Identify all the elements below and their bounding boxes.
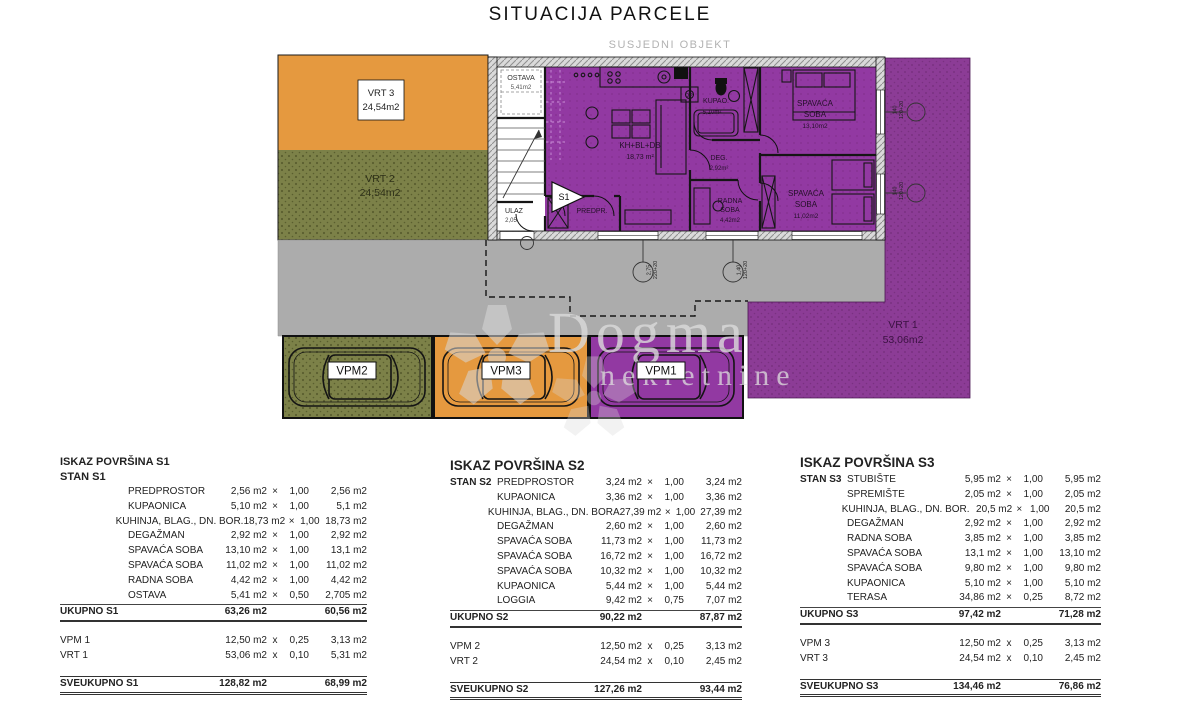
cell-mult [642, 683, 658, 698]
cell-value: 127,26 m2 [594, 683, 642, 698]
table-row: KUHINJA, BLAG., DN. BORA27,39 m2×1,0027,… [450, 506, 742, 521]
cell-group [450, 491, 497, 506]
vrt2-name: VRT 2 [365, 173, 395, 185]
cell-factor [1017, 680, 1043, 695]
spacer [60, 664, 367, 674]
cell-value: 63,26 m2 [219, 605, 267, 620]
cell-group [800, 532, 847, 547]
area-table-s2: ISKAZ POVRŠINA S2STAN S2PREDPROSTOR3,24 … [450, 458, 742, 700]
extra-row: VPM 112,50 m2x0,253,13 m2 [60, 634, 367, 649]
cell-group [800, 562, 847, 577]
unit-marker-label: S1 [558, 192, 569, 202]
cell-mult: × [1001, 532, 1017, 547]
cell-value: 9,42 m2 [594, 594, 642, 609]
cell-label: SPAVAĆA SOBA [128, 544, 219, 559]
table-row: SPAVAĆA SOBA13,1 m2×1,0013,10 m2 [800, 547, 1101, 562]
cell-value: 16,72 m2 [594, 550, 642, 565]
cell-result: 9,80 m2 [1043, 562, 1101, 577]
fridge-icon [674, 67, 688, 79]
cell-factor: 1,00 [1026, 503, 1049, 518]
cell-value: 2,05 m2 [953, 488, 1001, 503]
cell-value: 2,56 m2 [219, 485, 267, 500]
cell-result: 5,95 m2 [1043, 473, 1101, 488]
cell-value: 11,02 m2 [219, 559, 267, 574]
cell-group [800, 488, 847, 503]
table-row: KUPAONICA5,10 m2×1,005,1 m2 [60, 500, 367, 515]
cell-label: KUHINJA, BLAG., DN. BORA [488, 506, 620, 521]
cell-factor: 1,00 [658, 476, 684, 491]
cell-result: 2,56 m2 [309, 485, 367, 500]
spacer [450, 628, 742, 640]
radna-label2: SOBA [720, 207, 740, 214]
cell-mult [267, 605, 283, 620]
cell-result: 87,87 m2 [684, 611, 742, 626]
living-area: 18,73 m² [626, 154, 654, 161]
cell-result: 5,31 m2 [309, 649, 367, 664]
cell-result: 11,02 m2 [309, 559, 367, 574]
cell-group [60, 574, 128, 589]
table-row: SPAVAĆA SOBA11,02 m2×1,0011,02 m2 [60, 559, 367, 574]
cell-label: LOGGIA [497, 594, 594, 609]
cell-mult: × [642, 550, 658, 565]
cell-group [800, 577, 847, 592]
table-row: RADNA SOBA3,85 m2×1,003,85 m2 [800, 532, 1101, 547]
ulaz-dim: 2,05 [505, 218, 517, 224]
spavaca2-label2: SOBA [795, 200, 818, 209]
spacer [60, 622, 367, 634]
cell-mult: × [267, 589, 283, 604]
cell-mult: × [267, 529, 283, 544]
dp-label: DP [685, 93, 693, 99]
cell-group [450, 580, 497, 595]
cell-group [800, 547, 847, 562]
table-row: KUHINJA, BLAG., DN. BOR.18,73 m2×1,0018,… [60, 515, 367, 530]
cell-mult: × [642, 594, 658, 609]
cell-result: 2,92 m2 [309, 529, 367, 544]
cell-mult [642, 611, 658, 626]
cell-mult [1001, 608, 1017, 623]
svg-text:VPM1: VPM1 [645, 366, 676, 378]
cell-factor: 1,00 [283, 485, 309, 500]
cell-value: 3,85 m2 [953, 532, 1001, 547]
cell-mult: x [1001, 652, 1017, 667]
cell-value: 5,10 m2 [953, 577, 1001, 592]
vrt3-name: VRT 3 [368, 88, 395, 99]
svg-text:120+20: 120+20 [899, 182, 905, 200]
svg-text:VPM3: VPM3 [490, 366, 521, 378]
grand-row: SVEUKUPNO S2127,26 m293,44 m2 [450, 682, 742, 701]
cell-mult: × [642, 491, 658, 506]
cell-label: RADNA SOBA [847, 532, 953, 547]
cell-result: 68,99 m2 [309, 677, 367, 692]
cell-label: SPAVAĆA SOBA [497, 565, 594, 580]
cell-result: 18,73 m2 [320, 515, 367, 530]
cell-group [60, 485, 128, 500]
cell-label: UKUPNO S1 [60, 605, 219, 620]
table-row: KUPAONICA3,36 m2×1,003,36 m2 [450, 491, 742, 506]
vpm1-label-box: VPM1 [637, 362, 685, 379]
table-row: LOGGIA9,42 m2×0,757,07 m2 [450, 594, 742, 609]
svg-text:120+20: 120+20 [743, 261, 749, 279]
cell-value: 12,50 m2 [594, 640, 642, 655]
cell-factor: 1,00 [658, 491, 684, 506]
cell-factor [283, 605, 309, 620]
cell-label: SVEUKUPNO S2 [450, 683, 594, 698]
spacer [800, 625, 1101, 637]
cell-label: UKUPNO S2 [450, 611, 594, 626]
cell-result: 93,44 m2 [684, 683, 742, 698]
cell-label: TERASA [847, 591, 953, 606]
cell-result: 20,5 m2 [1049, 503, 1101, 518]
cell-group: STAN S3 [800, 473, 847, 488]
cell-value: 12,50 m2 [953, 637, 1001, 652]
cell-factor [283, 677, 309, 692]
cell-factor: 1,00 [1017, 488, 1043, 503]
cell-label: VRT 3 [800, 652, 953, 667]
cell-mult [267, 677, 283, 692]
cell-value: 5,10 m2 [219, 500, 267, 515]
svg-text:2,75: 2,75 [647, 265, 653, 276]
cell-factor: 1,00 [1017, 473, 1043, 488]
cell-label: SVEUKUPNO S3 [800, 680, 953, 695]
cell-result: 5,44 m2 [684, 580, 742, 595]
cell-mult: × [1001, 517, 1017, 532]
cell-factor: 1,00 [658, 535, 684, 550]
cell-label: SVEUKUPNO S1 [60, 677, 219, 692]
vrt3-label-box: VRT 3 24,54m2 [358, 80, 404, 120]
deg-area: 2,92m² [710, 166, 729, 172]
cell-value: 34,86 m2 [953, 591, 1001, 606]
vrt1-area: 53,06m2 [883, 334, 924, 346]
cell-label: VPM 2 [450, 640, 594, 655]
cell-factor: 0,50 [283, 589, 309, 604]
table-row: PREDPROSTOR2,56 m2×1,002,56 m2 [60, 485, 367, 500]
cell-value: 9,80 m2 [953, 562, 1001, 577]
cell-mult: × [1001, 591, 1017, 606]
vrt1-name: VRT 1 [888, 319, 918, 331]
cell-value: 13,1 m2 [953, 547, 1001, 562]
cell-group [60, 529, 128, 544]
cell-result: 3,85 m2 [1043, 532, 1101, 547]
spavaca2-area: 11,02m2 [794, 213, 819, 220]
cell-label: KUHINJA, BLAG., DN. BOR. [842, 503, 970, 518]
cell-label: SPAVAĆA SOBA [847, 562, 953, 577]
table-row: DEGAŽMAN2,92 m2×1,002,92 m2 [800, 517, 1101, 532]
area-table-s3: ISKAZ POVRŠINA S3STAN S3STUBIŠTE5,95 m2×… [800, 455, 1101, 697]
cell-label: UKUPNO S3 [800, 608, 953, 623]
living-label: KH+BL+DB [619, 141, 660, 150]
cell-result: 3,13 m2 [1043, 637, 1101, 652]
cell-result: 16,72 m2 [684, 550, 742, 565]
ostava-area: 5,41m2 [511, 84, 532, 91]
table-row: KUPAONICA5,44 m2×1,005,44 m2 [450, 580, 742, 595]
cell-group [60, 500, 128, 515]
cell-result: 7,07 m2 [684, 594, 742, 609]
cell-result: 13,1 m2 [309, 544, 367, 559]
table-row: DEGAŽMAN2,60 m2×1,002,60 m2 [450, 520, 742, 535]
cell-mult: x [642, 655, 658, 670]
table-title: ISKAZ POVRŠINA S1 [60, 456, 367, 468]
cell-mult: × [642, 565, 658, 580]
kupaonica-label: KUPAO. [703, 98, 729, 105]
cell-value: 2,92 m2 [219, 529, 267, 544]
cell-label: RADNA SOBA [128, 574, 219, 589]
cell-value: 90,22 m2 [594, 611, 642, 626]
cell-label: DEGAŽMAN [497, 520, 594, 535]
cell-result: 76,86 m2 [1043, 680, 1101, 695]
wall-top [488, 57, 885, 67]
cell-group [800, 591, 847, 606]
cell-label: PREDPROSTOR [497, 476, 594, 491]
cell-value: 24,54 m2 [953, 652, 1001, 667]
cell-result: 60,56 m2 [309, 605, 367, 620]
cell-factor: 0,10 [283, 649, 309, 664]
svg-text:220+20: 220+20 [653, 261, 659, 279]
cell-value: 5,44 m2 [594, 580, 642, 595]
cell-factor: 0,25 [1017, 637, 1043, 652]
cell-mult: × [642, 476, 658, 491]
cell-value: 20,5 m2 [970, 503, 1013, 518]
cell-factor: 1,00 [1017, 547, 1043, 562]
table-row: TERASA34,86 m2×0,258,72 m2 [800, 591, 1101, 606]
table-row: RADNA SOBA4,42 m2×1,004,42 m2 [60, 574, 367, 589]
predprostor-label: PREDPR. [576, 208, 607, 215]
cell-value: 24,54 m2 [594, 655, 642, 670]
cell-factor: 1,00 [283, 574, 309, 589]
total-row: UKUPNO S397,42 m271,28 m2 [800, 607, 1101, 625]
cell-value: 2,92 m2 [953, 517, 1001, 532]
cell-group [450, 535, 497, 550]
svg-text:VPM2: VPM2 [336, 366, 367, 378]
cell-factor: 1,00 [1017, 517, 1043, 532]
table-row: KUHINJA, BLAG., DN. BOR.20,5 m2×1,0020,5… [800, 503, 1101, 518]
cell-factor: 1,00 [658, 565, 684, 580]
cell-factor: 1,00 [283, 529, 309, 544]
cell-factor: 0,25 [658, 640, 684, 655]
table-row: SPAVAĆA SOBA9,80 m2×1,009,80 m2 [800, 562, 1101, 577]
toilet-tank [715, 78, 727, 84]
spavaca1-area: 13,10m2 [802, 123, 828, 130]
cell-label: PREDPROSTOR [128, 485, 219, 500]
cell-factor: 0,25 [1017, 591, 1043, 606]
cell-mult: × [1001, 473, 1017, 488]
cell-label: SPAVAĆA SOBA [128, 559, 219, 574]
cell-mult: × [661, 506, 674, 521]
cell-mult: × [267, 485, 283, 500]
cell-mult: x [642, 640, 658, 655]
spavaca2-label: SPAVAĆA [788, 189, 825, 198]
area-table-s1: ISKAZ POVRŠINA S1STAN S1PREDPROSTOR2,56 … [60, 456, 367, 695]
vrt2-area: 24,54m2 [360, 187, 401, 199]
extra-row: VPM 212,50 m2x0,253,13 m2 [450, 640, 742, 655]
extra-row: VPM 312,50 m2x0,253,13 m2 [800, 637, 1101, 652]
cell-value: 5,95 m2 [953, 473, 1001, 488]
total-row: UKUPNO S163,26 m260,56 m2 [60, 604, 367, 622]
grand-row: SVEUKUPNO S3134,46 m276,86 m2 [800, 679, 1101, 698]
cell-label: DEGAŽMAN [128, 529, 219, 544]
cell-result: 2,45 m2 [1043, 652, 1101, 667]
cell-group [450, 506, 488, 521]
cell-mult: × [1012, 503, 1026, 518]
cell-mult: × [267, 544, 283, 559]
cell-group [60, 559, 128, 574]
cell-result: 2,45 m2 [684, 655, 742, 670]
cell-factor: 0,10 [1017, 652, 1043, 667]
cell-mult: × [267, 500, 283, 515]
table-row: SPAVAĆA SOBA16,72 m2×1,0016,72 m2 [450, 550, 742, 565]
cell-group [450, 565, 497, 580]
cell-result: 5,10 m2 [1043, 577, 1101, 592]
cell-group [800, 503, 842, 518]
cell-mult [1001, 680, 1017, 695]
cell-label: VRT 2 [450, 655, 594, 670]
cell-mult: × [1001, 488, 1017, 503]
cell-mult: x [1001, 637, 1017, 652]
cell-label: VPM 3 [800, 637, 953, 652]
total-row: UKUPNO S290,22 m287,87 m2 [450, 610, 742, 628]
cell-result: 27,39 m2 [695, 506, 742, 521]
vpm2-label-box: VPM2 [328, 362, 376, 379]
cell-mult: × [642, 535, 658, 550]
cell-mult: × [642, 580, 658, 595]
cell-factor: 1,00 [283, 559, 309, 574]
ulaz-label: ULAZ [505, 208, 524, 215]
kupaonica-area: 5,10m² [703, 110, 722, 116]
svg-text:1,40: 1,40 [737, 265, 743, 276]
cell-factor [658, 611, 684, 626]
cell-group [450, 550, 497, 565]
cell-value: 11,73 m2 [594, 535, 642, 550]
cell-result: 4,42 m2 [309, 574, 367, 589]
table-row: STAN S3STUBIŠTE5,95 m2×1,005,95 m2 [800, 473, 1101, 488]
spavaca1-label: SPAVAĆA [797, 99, 834, 108]
cell-value: 3,24 m2 [594, 476, 642, 491]
table-row: KUPAONICA5,10 m2×1,005,10 m2 [800, 577, 1101, 592]
cell-result: 8,72 m2 [1043, 591, 1101, 606]
table-row: SPAVAĆA SOBA13,10 m2×1,0013,1 m2 [60, 544, 367, 559]
wall-left [488, 57, 497, 240]
cell-factor: 0,10 [658, 655, 684, 670]
svg-text:140: 140 [893, 187, 899, 196]
svg-text:140: 140 [893, 106, 899, 115]
cell-mult: × [642, 520, 658, 535]
cell-factor: 1,00 [1017, 577, 1043, 592]
spacer [450, 670, 742, 680]
cell-factor: 1,00 [1017, 562, 1043, 577]
table-row: DEGAŽMAN2,92 m2×1,002,92 m2 [60, 529, 367, 544]
cell-result: 2,05 m2 [1043, 488, 1101, 503]
grand-row: SVEUKUPNO S1128,82 m268,99 m2 [60, 676, 367, 695]
cell-result: 3,24 m2 [684, 476, 742, 491]
building-floorplan: S1 [488, 57, 885, 240]
cell-value: 13,10 m2 [219, 544, 267, 559]
svg-text:120+20: 120+20 [899, 101, 905, 119]
cell-value: 5,41 m2 [219, 589, 267, 604]
cell-result: 3,13 m2 [684, 640, 742, 655]
ostava-label: OSTAVA [507, 73, 535, 82]
vpm3-label-box: VPM3 [482, 362, 530, 379]
cell-label: OSTAVA [128, 589, 219, 604]
cell-mult: × [267, 559, 283, 574]
cell-label: SPAVAĆA SOBA [847, 547, 953, 562]
cell-value: 128,82 m2 [219, 677, 267, 692]
table-row: SPAVAĆA SOBA10,32 m2×1,0010,32 m2 [450, 565, 742, 580]
cell-factor [1017, 608, 1043, 623]
radna-label: RADNA [718, 198, 743, 205]
cell-group [800, 517, 847, 532]
page: SITUACIJA PARCELE SUSJEDNI OBJEKT [0, 0, 1200, 723]
cell-result: 11,73 m2 [684, 535, 742, 550]
radna-area: 4,42m2 [720, 218, 741, 224]
cell-factor: 1,00 [283, 544, 309, 559]
cell-label: DEGAŽMAN [847, 517, 953, 532]
cell-result: 2,92 m2 [1043, 517, 1101, 532]
cell-result: 13,10 m2 [1043, 547, 1101, 562]
table-row: SPAVAĆA SOBA11,73 m2×1,0011,73 m2 [450, 535, 742, 550]
cell-result: 3,13 m2 [309, 634, 367, 649]
cell-mult: x [267, 634, 283, 649]
cell-label: SPREMIŠTE [847, 488, 953, 503]
cell-mult: × [1001, 562, 1017, 577]
table-subtitle: STAN S1 [60, 470, 367, 485]
cell-value: 18,73 m2 [243, 515, 285, 530]
extra-row: VRT 324,54 m2x0,102,45 m2 [800, 652, 1101, 667]
cell-label: SPAVAĆA SOBA [497, 550, 594, 565]
cell-result: 5,1 m2 [309, 500, 367, 515]
cell-mult: × [1001, 577, 1017, 592]
cell-result: 2,60 m2 [684, 520, 742, 535]
cell-factor: 1,00 [674, 506, 695, 521]
cell-result: 10,32 m2 [684, 565, 742, 580]
vrt3-area: 24,54m2 [363, 102, 400, 113]
extra-row: VRT 224,54 m2x0,102,45 m2 [450, 655, 742, 670]
table-title: ISKAZ POVRŠINA S3 [800, 455, 1101, 470]
cell-mult: × [285, 515, 298, 530]
cell-factor: 1,00 [298, 515, 319, 530]
cell-label: KUPAONICA [497, 580, 594, 595]
cell-group [450, 520, 497, 535]
cell-value: 12,50 m2 [219, 634, 267, 649]
watermark-brand: Dogma [548, 300, 749, 365]
table-row: STAN S2PREDPROSTOR3,24 m2×1,003,24 m2 [450, 476, 742, 491]
cell-value: 134,46 m2 [953, 680, 1001, 695]
table-title: ISKAZ POVRŠINA S2 [450, 458, 742, 473]
cell-label: KUPAONICA [497, 491, 594, 506]
cell-label: SPAVAĆA SOBA [497, 535, 594, 550]
deg-label: DEG. [710, 155, 727, 162]
cell-group [60, 515, 116, 530]
cell-value: 2,60 m2 [594, 520, 642, 535]
table-row: OSTAVA5,41 m2×0,502,705 m2 [60, 589, 367, 604]
cell-label: VPM 1 [60, 634, 219, 649]
cell-value: 4,42 m2 [219, 574, 267, 589]
cell-result: 2,705 m2 [309, 589, 367, 604]
cell-label: STUBIŠTE [847, 473, 953, 488]
cell-mult: × [1001, 547, 1017, 562]
cell-label: VRT 1 [60, 649, 219, 664]
cell-value: 3,36 m2 [594, 491, 642, 506]
cell-label: KUPAONICA [128, 500, 219, 515]
cell-group: STAN S2 [450, 476, 497, 491]
extra-row: VRT 153,06 m2x0,105,31 m2 [60, 649, 367, 664]
cell-result: 3,36 m2 [684, 491, 742, 506]
cell-mult: x [267, 649, 283, 664]
cell-group [60, 589, 128, 604]
cell-mult: × [267, 574, 283, 589]
spavaca1-label2: SOBA [804, 110, 827, 119]
cell-factor: 1,00 [658, 580, 684, 595]
cell-factor: 0,75 [658, 594, 684, 609]
